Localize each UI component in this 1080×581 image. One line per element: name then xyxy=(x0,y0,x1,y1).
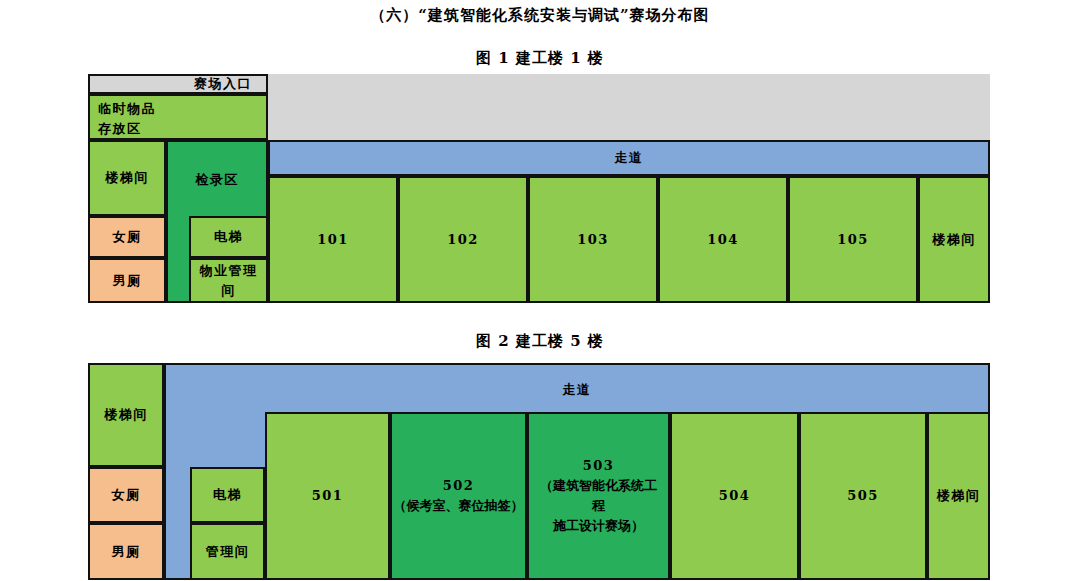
fig1-corridor: 走道 xyxy=(268,140,990,176)
fig2-mens-toilet: 男厕 xyxy=(88,523,164,580)
fig1-mens-toilet: 男厕 xyxy=(88,258,166,303)
temporary-storage-line2: 存放区 xyxy=(98,119,142,139)
checkin-area-label: 检录区 xyxy=(168,142,266,218)
fig2-corridor-label: 走道 xyxy=(166,365,988,414)
room-502-number: 502 xyxy=(443,476,475,496)
room-503-note-line2: 程 xyxy=(592,496,605,516)
room-501: 501 xyxy=(265,412,390,580)
room-103: 103 xyxy=(528,176,658,303)
management-room: 管理间 xyxy=(190,523,265,580)
room-503-note-line1: （建筑智能化系统工 xyxy=(540,476,657,496)
fig1-stairwell-left: 楼梯间 xyxy=(88,140,166,216)
fig1-stairwell-right: 楼梯间 xyxy=(918,176,990,303)
fig2-stairwell-left: 楼梯间 xyxy=(88,363,164,467)
fig1-womens-toilet: 女厕 xyxy=(88,216,166,258)
room-502-note: （候考室、赛位抽签） xyxy=(394,496,524,516)
fig2-womens-toilet: 女厕 xyxy=(88,467,164,523)
property-management-room: 物业管理 间 xyxy=(189,258,268,303)
fig2-stairwell-right: 楼梯间 xyxy=(927,412,990,580)
property-management-line2: 间 xyxy=(221,281,236,301)
room-504: 504 xyxy=(670,412,799,580)
figure2-floorplan: 走道 楼梯间 女厕 男厕 电梯 管理间 501 502 （候考室、赛位抽签） 5… xyxy=(88,363,990,580)
room-503-number: 503 xyxy=(583,456,615,476)
figure2-caption: 图 2 建工楼 5 楼 xyxy=(0,332,1080,351)
temporary-storage-line1: 临时物品 xyxy=(98,99,156,119)
property-management-line1: 物业管理 xyxy=(200,261,258,281)
room-101: 101 xyxy=(268,176,398,303)
room-105: 105 xyxy=(788,176,918,303)
temporary-storage-room: 临时物品 存放区 xyxy=(88,94,268,140)
room-102: 102 xyxy=(398,176,528,303)
room-505: 505 xyxy=(799,412,927,580)
room-502: 502 （候考室、赛位抽签） xyxy=(390,412,527,580)
fig1-elevator: 电梯 xyxy=(189,216,268,258)
room-503: 503 （建筑智能化系统工 程 施工设计赛场） xyxy=(527,412,670,580)
room-503-note-line3: 施工设计赛场） xyxy=(553,516,644,536)
fig2-elevator: 电梯 xyxy=(190,467,265,523)
figure1-caption: 图 1 建工楼 1 楼 xyxy=(0,49,1080,68)
figure1-floorplan: 赛场入口 临时物品 存放区 楼梯间 女厕 男厕 检录区 电梯 物业管理 间 走道… xyxy=(88,72,990,303)
page-title: （六）“建筑智能化系统安装与调试”赛场分布图 xyxy=(0,6,1080,25)
venue-entrance-label: 赛场入口 xyxy=(88,74,268,94)
room-104: 104 xyxy=(658,176,788,303)
